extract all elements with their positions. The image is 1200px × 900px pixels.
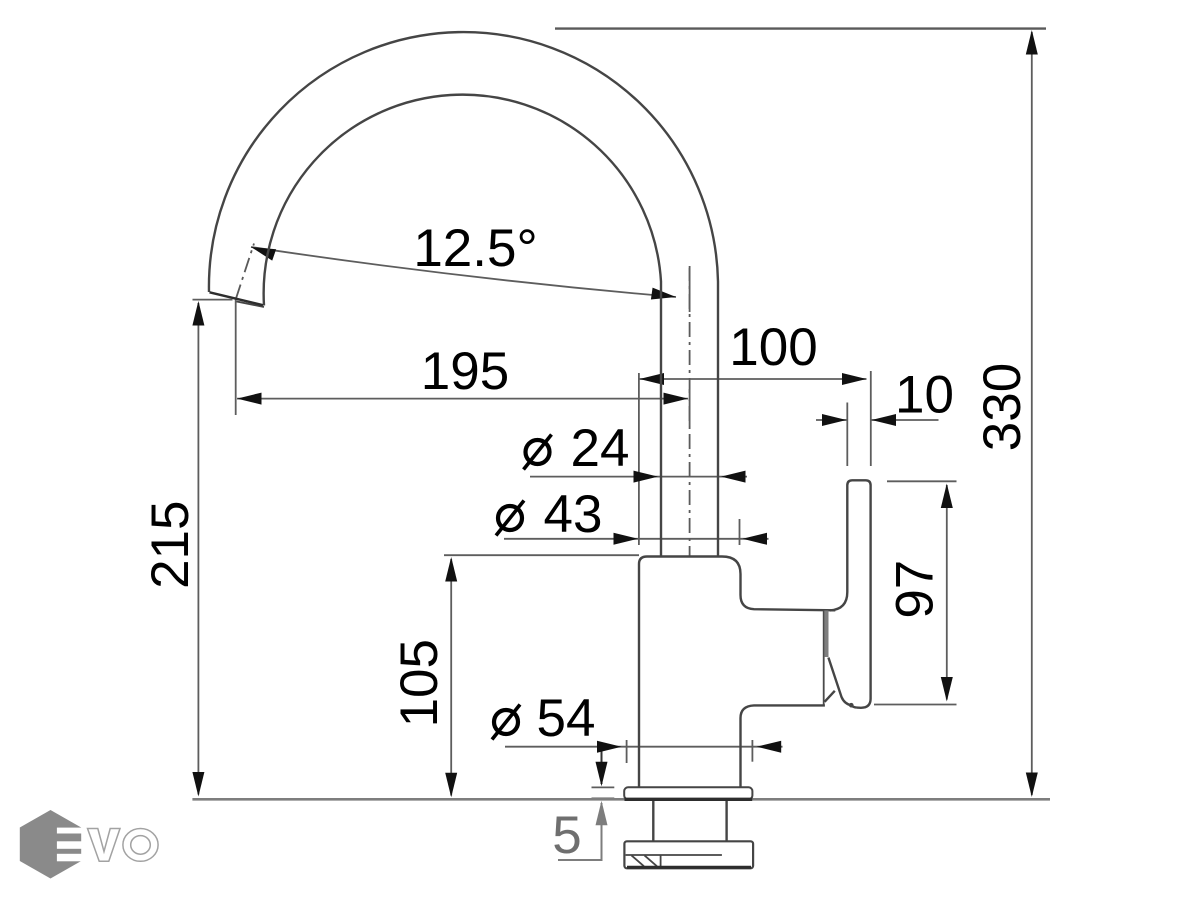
svg-text:10: 10 [895, 366, 954, 425]
svg-text:97: 97 [885, 560, 944, 619]
svg-text:24: 24 [571, 419, 630, 478]
svg-text:54: 54 [537, 689, 596, 748]
svg-text:215: 215 [141, 500, 200, 588]
svg-text:195: 195 [421, 342, 509, 401]
svg-text:105: 105 [390, 639, 449, 727]
svg-text:12.5°: 12.5° [413, 219, 537, 278]
svg-text:330: 330 [973, 363, 1032, 451]
svg-text:5: 5 [552, 806, 581, 865]
svg-text:100: 100 [729, 318, 817, 377]
svg-text:43: 43 [544, 485, 603, 544]
